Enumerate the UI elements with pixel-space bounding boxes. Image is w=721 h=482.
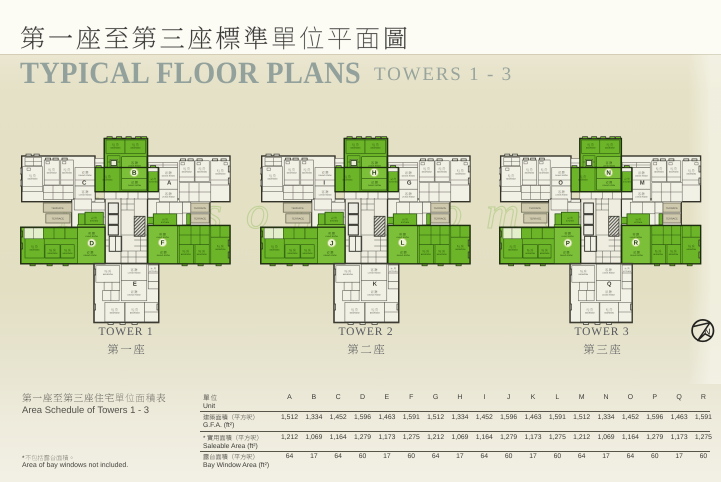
- svg-text:*: *: [203, 435, 206, 442]
- svg-text:*: *: [22, 454, 24, 461]
